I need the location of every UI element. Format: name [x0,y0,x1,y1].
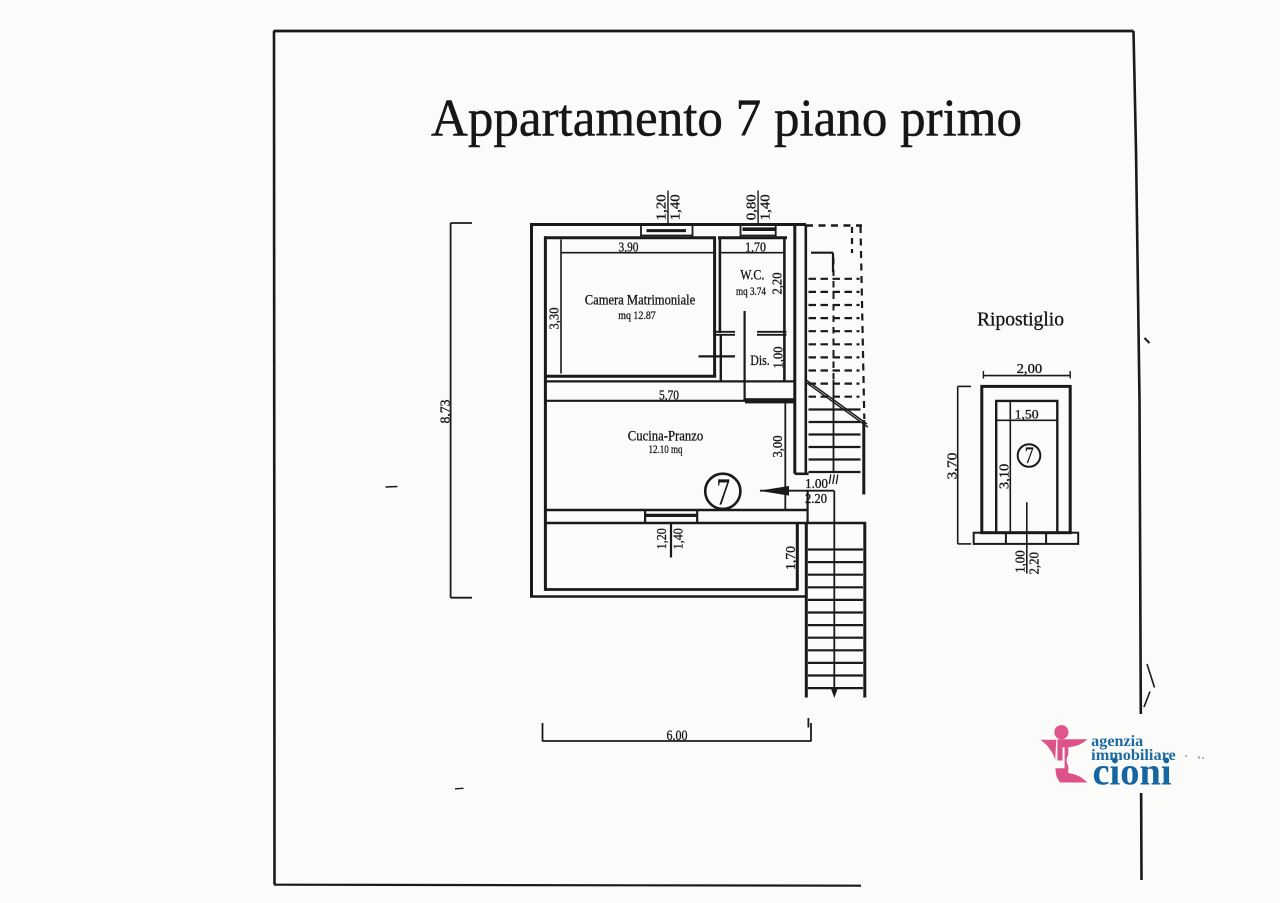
svg-text:Camera Matrimoniale: Camera Matrimoniale [585,293,696,309]
svg-text:1,00: 1,00 [1012,550,1027,573]
svg-text:5,70: 5,70 [659,388,679,403]
svg-text:3,70: 3,70 [945,453,960,480]
svg-text:1,40: 1,40 [670,528,685,549]
svg-text:Ripostiglio: Ripostiglio [977,310,1064,331]
svg-text:3,10: 3,10 [996,463,1011,489]
svg-text:1,70: 1,70 [783,546,798,570]
svg-text:1,20: 1,20 [653,194,668,220]
svg-text:1,40: 1,40 [668,194,683,220]
svg-text:12.10 mq: 12.10 mq [649,444,683,456]
svg-text:Appartamento 7 piano primo: Appartamento 7 piano primo [431,90,1022,148]
svg-text:1.00: 1.00 [805,477,828,492]
svg-text:Dis.: Dis. [750,353,770,369]
svg-text:3,30: 3,30 [547,308,562,330]
svg-text:7: 7 [1025,443,1034,468]
svg-text:0,80: 0,80 [744,194,759,220]
svg-text:W.C.: W.C. [740,268,764,284]
svg-text:mq 3.74: mq 3.74 [736,286,766,298]
svg-text:3,90: 3,90 [619,240,639,255]
svg-text:cioni: cioni [1093,751,1172,794]
svg-text:3,00: 3,00 [771,436,786,458]
svg-text:1,70: 1,70 [745,240,766,255]
svg-text:7: 7 [716,472,730,514]
svg-text:mq 12.87: mq 12.87 [618,308,656,322]
svg-text:1,50: 1,50 [1015,408,1039,422]
svg-text:1,00: 1,00 [772,347,787,369]
svg-text:1,40: 1,40 [758,194,773,220]
svg-text:8,73: 8,73 [439,400,454,424]
svg-text:2.20: 2.20 [805,492,827,507]
svg-text:2,20: 2,20 [770,273,785,295]
svg-text:1,20: 1,20 [654,528,669,549]
svg-text:6.00: 6.00 [667,728,688,744]
svg-text:Cucina-Pranzo: Cucina-Pranzo [628,429,704,445]
svg-text:2,00: 2,00 [1017,361,1043,376]
svg-text:2,20: 2,20 [1027,552,1042,575]
